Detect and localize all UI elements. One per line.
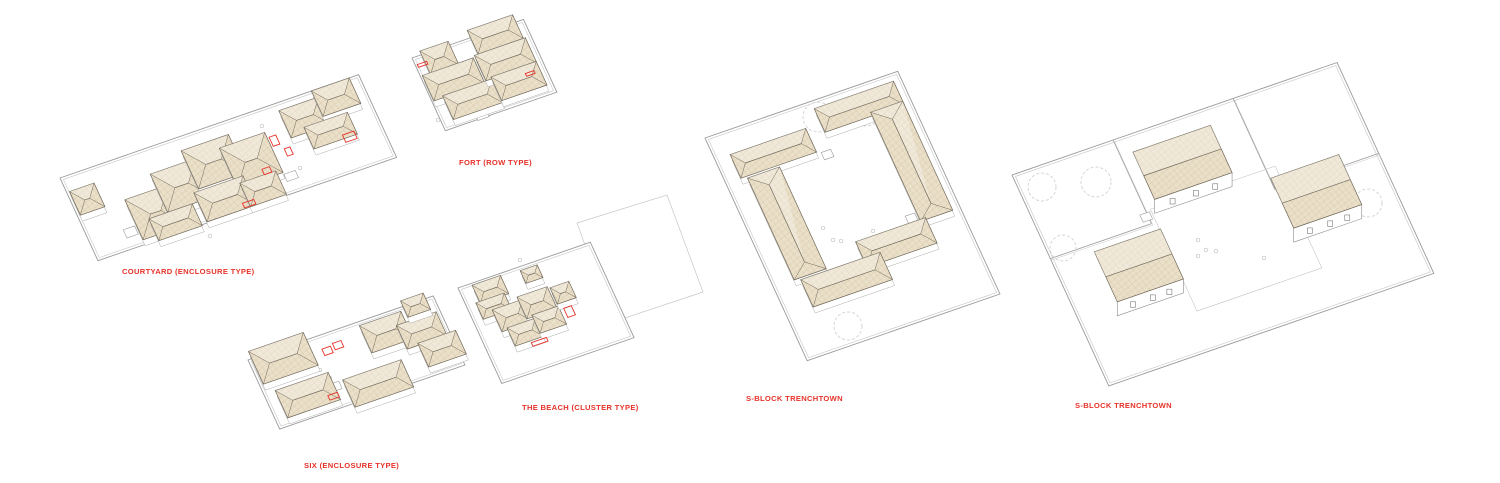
window bbox=[1193, 190, 1198, 196]
window bbox=[1167, 289, 1172, 295]
window bbox=[1328, 221, 1333, 227]
figure-sblock-1 bbox=[705, 71, 1000, 360]
label-courtyard-enclosure-type: COURTYARD (ENCLOSURE TYPE) bbox=[122, 267, 255, 276]
label-the-beach-cluster-type: THE BEACH (CLUSTER TYPE) bbox=[522, 403, 639, 412]
window bbox=[1307, 228, 1312, 234]
diagram-page: COURTYARD (ENCLOSURE TYPE) FORT (ROW TYP… bbox=[0, 0, 1500, 483]
label-six-enclosure-type: SIX (ENCLOSURE TYPE) bbox=[304, 461, 399, 470]
figure-sblock-2 bbox=[1012, 63, 1434, 386]
axonometric-diagram bbox=[0, 0, 1500, 483]
window bbox=[1170, 199, 1175, 205]
window bbox=[1213, 184, 1218, 190]
window bbox=[1150, 295, 1155, 301]
label-fort-row-type: FORT (ROW TYPE) bbox=[459, 158, 532, 167]
window bbox=[1345, 215, 1350, 221]
label-s-block-trenchtown-1: S-BLOCK TRENCHTOWN bbox=[746, 394, 843, 403]
figure-beach bbox=[458, 195, 703, 383]
figure-six bbox=[248, 293, 468, 429]
figure-courtyard bbox=[60, 75, 397, 261]
label-s-block-trenchtown-2: S-BLOCK TRENCHTOWN bbox=[1075, 401, 1172, 410]
window bbox=[1131, 302, 1136, 308]
figure-fort bbox=[412, 15, 557, 131]
